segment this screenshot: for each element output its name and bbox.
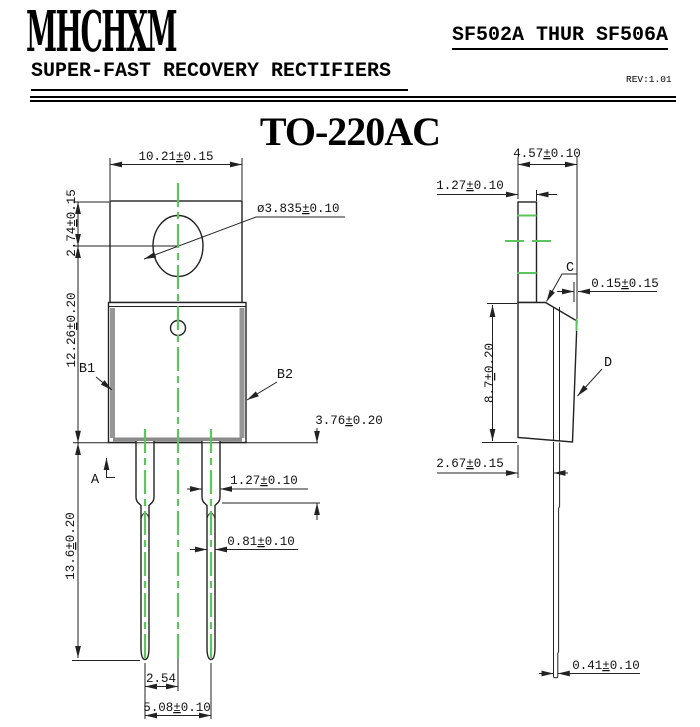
label-d-text: D xyxy=(604,356,612,371)
dim-pitch-text: 5.08±0.10 xyxy=(143,701,211,715)
side-body xyxy=(518,303,577,443)
dim-body-height: 12.26±0.20 xyxy=(65,246,79,443)
side-view: 4.57±0.10 1.27±0.10 0.15±0.15 8.7±0.20 xyxy=(436,147,659,678)
label-c-text: C xyxy=(566,261,574,276)
dim-tab-width: 10.21±0.15 xyxy=(110,150,242,200)
dim-tip-thickness: 0.41±0.10 xyxy=(539,659,640,674)
dim-body-height-text: 12.26±0.20 xyxy=(65,292,79,367)
section-a-marker: A xyxy=(91,458,115,488)
label-c: C xyxy=(547,261,578,302)
front-outline xyxy=(73,201,318,660)
dim-hole-offset-text: 2.74±0.15 xyxy=(65,189,79,257)
dim-tab-thickness: 1.27±0.10 xyxy=(436,179,557,201)
dim-tip-thickness-text: 0.41±0.10 xyxy=(572,659,640,673)
side-tab xyxy=(518,202,537,303)
dim-lower-height-text: 8.7±0.20 xyxy=(483,343,497,403)
label-b1-text: B1 xyxy=(79,362,95,377)
dim-depth-text: 4.57±0.10 xyxy=(513,147,581,161)
label-b2: B2 xyxy=(247,368,293,400)
front-view: 10.21±0.15 2.74±0.15 12.26±0.20 13.6±0.2… xyxy=(64,150,383,719)
dim-tab-thickness-text: 1.27±0.10 xyxy=(436,179,504,193)
dim-back-step-text: 0.15±0.15 xyxy=(591,277,659,291)
label-d: D xyxy=(578,356,613,396)
dim-lower-height: 8.7±0.20 xyxy=(482,304,517,443)
dim-lead-length: 13.6±0.20 xyxy=(64,443,140,661)
label-b1: B1 xyxy=(79,362,112,390)
dim-pitch-half-text: 2.54 xyxy=(146,672,176,686)
dim-back-step: 0.15±0.15 xyxy=(557,277,659,302)
label-b2-text: B2 xyxy=(277,368,293,383)
dim-lead-width-narrow-text: 0.81±0.10 xyxy=(227,535,295,549)
dim-lead-offset-text: 2.67±0.15 xyxy=(436,457,504,471)
dim-lead-offset: 2.67±0.15 xyxy=(436,445,568,478)
dim-shoulder-length-text: 3.76±0.20 xyxy=(315,414,383,428)
dim-hole-diameter-text: ø3.835±0.10 xyxy=(257,202,340,216)
side-lead-lower xyxy=(554,442,560,678)
dim-lead-width-narrow: 0.81±0.10 xyxy=(190,535,298,550)
dim-lead-width-wide-text: 1.27±0.10 xyxy=(230,474,298,488)
dim-lead-length-text: 13.6±0.20 xyxy=(64,512,78,580)
dim-tab-width-text: 10.21±0.15 xyxy=(138,150,213,164)
section-a-label: A xyxy=(91,473,100,488)
datasheet-page: MHCHXM SF502A THUR SF506A SUPER-FAST REC… xyxy=(0,0,700,727)
package-drawing: 10.21±0.15 2.74±0.15 12.26±0.20 13.6±0.2… xyxy=(0,0,700,727)
